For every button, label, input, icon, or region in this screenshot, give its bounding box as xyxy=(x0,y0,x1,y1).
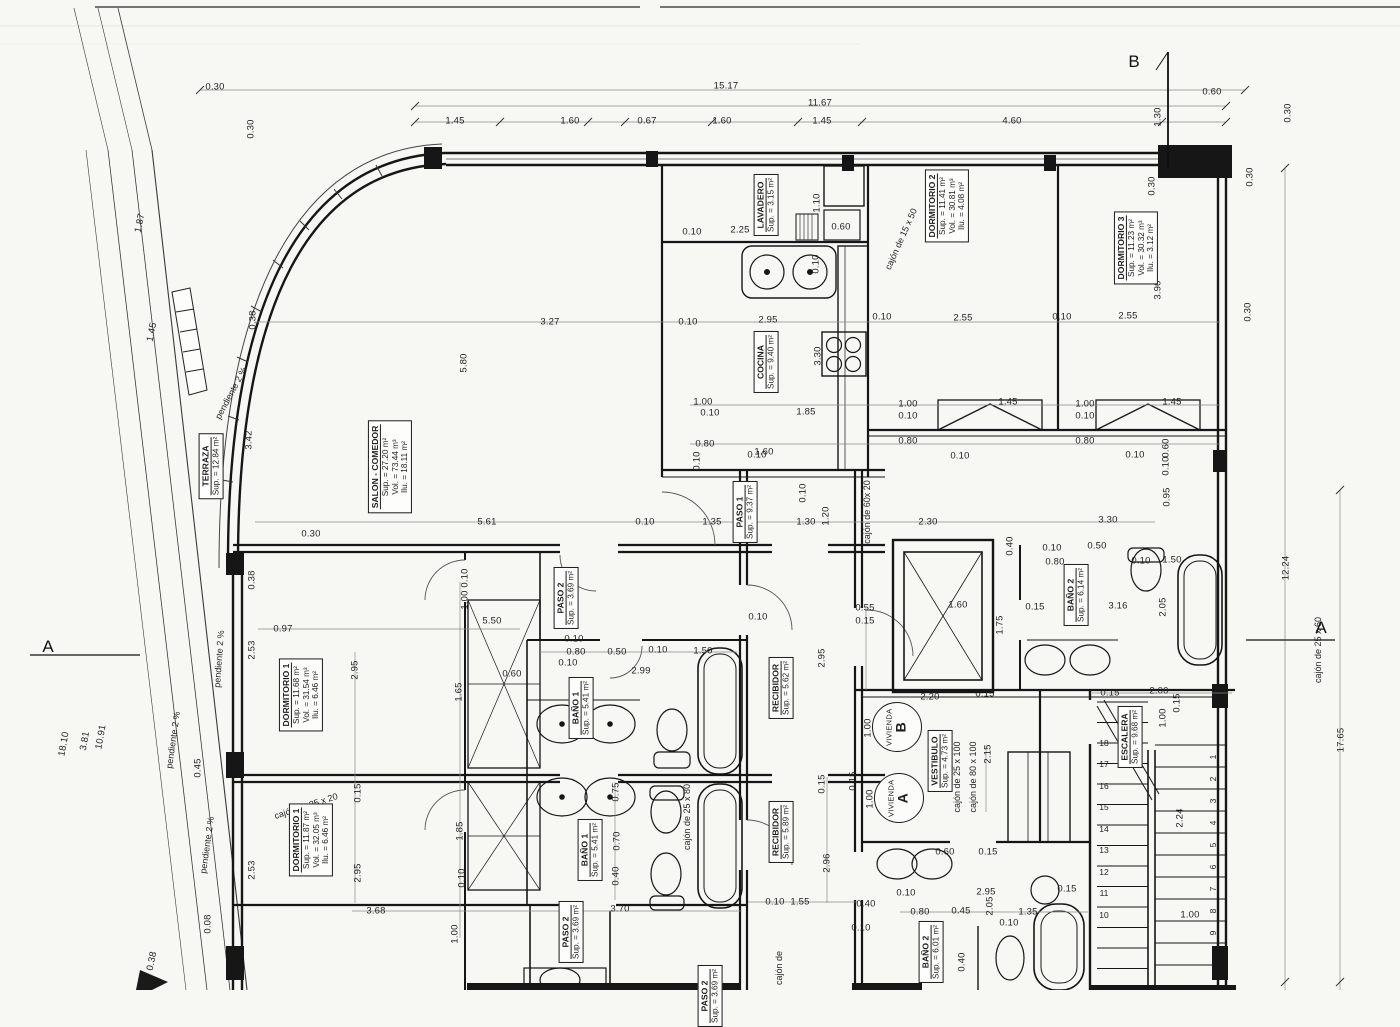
dimension-label: 2.95 xyxy=(350,660,361,679)
dimension-label: 0.40 xyxy=(611,866,622,885)
stair-number: 2 xyxy=(1208,777,1218,782)
dimension-label: 2.55 xyxy=(953,313,972,324)
dimension-label: 0.50 xyxy=(1087,541,1106,552)
room-metric: Vol. = 31.54 m³ xyxy=(302,663,312,728)
room-name: PASO 2 xyxy=(561,905,572,959)
dimension-label: 2.05 xyxy=(985,896,996,915)
room-metric: Vol. = 73.44 m³ xyxy=(391,425,401,510)
dimension-label: 2.96 xyxy=(822,853,833,872)
dimension-label: 2.24 xyxy=(1175,808,1186,827)
room-label-vestibulo: VESTIBULOSup. = 4.73 m² xyxy=(928,730,953,792)
slope-note: pendiente 2 % xyxy=(198,816,216,874)
dimension-label: 0.60 xyxy=(1202,87,1221,98)
dimension-label: 17.65 xyxy=(1336,728,1347,753)
room-label-paso-2-a: PASO 2Sup. = 3.69 m² xyxy=(559,901,584,963)
room-name: LAVADERO xyxy=(756,178,767,232)
dimension-label: 0.70 xyxy=(612,831,623,850)
section-letter: A xyxy=(1315,618,1326,638)
room-metric: Sup. = 3.15 m² xyxy=(767,178,777,232)
room-metric: Sup. = 9.40 m² xyxy=(767,335,777,389)
dimension-label: 18.10 xyxy=(56,731,71,757)
dimension-label: 0.15 xyxy=(1025,602,1044,613)
dimension-label: 2.30 xyxy=(918,517,937,528)
dimension-label: 0.15 xyxy=(353,783,364,802)
slope-note: pendiente 2 % xyxy=(164,711,182,769)
dimension-label: 0.15 xyxy=(1100,688,1119,699)
stair-number: 14 xyxy=(1099,824,1108,834)
section-letter: B xyxy=(1128,52,1139,72)
stair-number: 11 xyxy=(1100,888,1109,898)
room-name: RECIBIDOR xyxy=(771,661,782,715)
dimension-label: 5.50 xyxy=(482,616,501,627)
dimension-label: 0.60 xyxy=(502,669,521,680)
dimension-label: 0.10 xyxy=(692,451,703,470)
dimension-label: 1.50 xyxy=(1162,555,1181,566)
room-name: BAÑO 2 xyxy=(1066,568,1077,622)
room-metric: Sup. = 6.14 m² xyxy=(1077,568,1087,622)
dimension-label: 1.35 xyxy=(702,517,721,528)
room-label-recibidor-b: RECIBIDORSup. = 5.62 m² xyxy=(769,657,794,719)
dimension-label: 0.45 xyxy=(193,758,204,777)
dimension-label: 1.00 xyxy=(1180,910,1199,921)
dimension-label: 0.08 xyxy=(203,914,214,933)
dimension-label: 2.00 xyxy=(1149,686,1168,697)
dimension-label: 0.10 xyxy=(457,868,468,887)
dimension-label: 3.70 xyxy=(610,904,629,915)
dimension-label: 0.10 xyxy=(1131,556,1150,567)
dimension-label: 15.17 xyxy=(714,81,739,92)
dimension-label: 1.30 xyxy=(1153,107,1164,126)
dimension-label: 0.50 xyxy=(607,647,626,658)
room-metric: Sup. = 3.69 m² xyxy=(572,905,582,959)
dimension-label: 0.10 xyxy=(798,483,809,502)
dimension-label: 0.10 xyxy=(678,317,697,328)
room-metric: Sup. = 3.69 m² xyxy=(711,969,721,1023)
dimension-label: 0.10 xyxy=(1125,450,1144,461)
dimension-label: 1.60 xyxy=(948,600,967,611)
dimension-label: 0.67 xyxy=(637,116,656,127)
dimension-label: 0.30 xyxy=(1147,176,1158,195)
dimension-label: 0.10 xyxy=(765,897,784,908)
room-label-dormitorio-3: DORMITORIO 3Sup. = 11.23 m²Vol. = 30.32 … xyxy=(1114,212,1158,285)
dimension-label: 0.15 xyxy=(848,771,859,790)
room-name: BAÑO 2 xyxy=(921,925,932,979)
stair-number: 7 xyxy=(1208,887,1218,892)
dimension-label: 1.85 xyxy=(796,407,815,418)
dimension-label: 0.10 xyxy=(747,450,766,461)
room-metric: Sup. = 11.23 m² xyxy=(1127,216,1137,281)
dimension-label: 0.10 xyxy=(1075,411,1094,422)
stair-number: 13 xyxy=(1099,845,1108,855)
dimension-label: 0.40 xyxy=(1005,536,1016,555)
dimension-label: 11.67 xyxy=(808,98,832,109)
dimension-label: 1.45 xyxy=(1162,397,1181,408)
dimension-label: 0.38 xyxy=(248,310,259,329)
dimension-label: 1.00 xyxy=(1158,708,1169,727)
dimension-label: 0.10 xyxy=(748,612,767,623)
dimension-label: 1.30 xyxy=(796,517,815,528)
stair-number: 18 xyxy=(1099,738,1108,748)
dimension-label: 0.10 xyxy=(460,568,471,587)
room-metric: Sup. = 27.20 m² xyxy=(381,425,391,510)
room-metric: Sup. = 11.68 m² xyxy=(292,663,302,728)
room-name: BAÑO 1 xyxy=(580,823,591,877)
room-label-escalera: ESCALERASup. = 9.68 m² xyxy=(1118,706,1143,768)
dimension-label: 0.10 xyxy=(648,645,667,656)
room-metric: Sup. = 5.41 m² xyxy=(591,823,601,877)
room-label-bano-2-b: BAÑO 2Sup. = 6.14 m² xyxy=(1064,564,1089,626)
room-label-terraza: TERRAZASup. = 12.84 m² xyxy=(199,433,224,499)
dimension-label: 0.95 xyxy=(1162,487,1173,506)
dimension-label: 0.38 xyxy=(145,950,160,971)
dimension-label: 1.60 xyxy=(712,116,731,127)
annotation-layer: 0.3015.170.6011.671.451.600.671.601.454.… xyxy=(0,0,1400,990)
dimension-label: 0.10 xyxy=(898,411,917,422)
dimension-label: 0.60 xyxy=(831,222,850,233)
room-metric: Ilu. = 6.46 m² xyxy=(311,663,321,728)
dimension-label: 0.10 xyxy=(999,918,1018,929)
stair-number: 3 xyxy=(1208,799,1218,804)
dimension-label: 0.60 xyxy=(1161,438,1172,457)
dimension-label: 0.30 xyxy=(1245,167,1256,186)
dimension-label: 0.80 xyxy=(910,907,929,918)
dimension-label: 3.27 xyxy=(540,317,559,328)
dimension-label: 0.15 xyxy=(978,847,997,858)
dimension-label: 0.40 xyxy=(957,952,968,971)
dimension-label: 0.30 xyxy=(246,119,257,138)
dimension-label: 0.10 xyxy=(872,312,891,323)
room-name: PASO 2 xyxy=(556,571,567,625)
dimension-label: 2.53 xyxy=(247,860,258,879)
dimension-label: 2.95 xyxy=(353,863,364,882)
stair-number: 15 xyxy=(1099,802,1108,812)
stair-number: 6 xyxy=(1208,865,1218,870)
dimension-label: 0.15 xyxy=(975,689,994,700)
dimension-label: 0.60 xyxy=(935,847,954,858)
dimension-label: 1.65 xyxy=(454,682,465,701)
dimension-label: 1.75 xyxy=(995,615,1006,634)
dimension-label: 0.38 xyxy=(247,570,258,589)
cajon-note: cajón de 25 x 100 xyxy=(952,741,962,812)
dimension-label: 1.10 xyxy=(812,193,823,212)
dimension-label: 5.80 xyxy=(459,353,470,372)
unit-badge-a: VIVIENDAA xyxy=(874,773,924,823)
dimension-label: 0.80 xyxy=(566,647,585,658)
dimension-label: 2.15 xyxy=(983,744,994,763)
room-label-lavadero: LAVADEROSup. = 3.15 m² xyxy=(754,174,779,236)
stair-number: 9 xyxy=(1208,931,1218,936)
dimension-label: 1.00 xyxy=(898,399,917,410)
cajon-note: cajón de 25 x 80 xyxy=(682,784,692,850)
dimension-label: 1.00 xyxy=(1075,399,1094,410)
floorplan-sheet: 0.3015.170.6011.671.451.600.671.601.454.… xyxy=(0,0,1400,990)
dimension-label: 0.40 xyxy=(856,899,875,910)
room-metric: Sup. = 9.37 m² xyxy=(746,485,756,539)
room-name: VESTIBULO xyxy=(930,734,941,788)
room-label-paso-2-b: PASO 2Sup. = 3.69 m² xyxy=(554,567,579,629)
slope-note: pendiente 2 % xyxy=(213,365,249,421)
room-label-bano-2-a: BAÑO 2Sup. = 6.01 m² xyxy=(919,921,944,983)
dimension-label: 0.10 xyxy=(1161,456,1172,475)
dimension-label: 0.30 xyxy=(301,529,320,540)
dimension-label: 0.10 xyxy=(851,923,870,934)
room-metric: Sup. = 5.41 m² xyxy=(582,681,592,735)
room-label-recibidor-a: RECIBIDORSup. = 5.89 m² xyxy=(769,801,794,863)
dimension-label: 0.10 xyxy=(896,888,915,899)
dimension-label: 2.55 xyxy=(1118,311,1137,322)
dimension-label: 3.81 xyxy=(78,731,92,752)
room-metric: Ilu. = 4.08 m² xyxy=(957,174,967,239)
dimension-label: 2.95 xyxy=(817,648,828,667)
room-label-dormitorio-1-a: DORMITORIO 1Sup. = 11.87 m²Vol. = 32.05 … xyxy=(289,804,333,877)
room-label-salon-comedor: SALON - COMEDORSup. = 27.20 m²Vol. = 73.… xyxy=(368,421,412,514)
cajon-note: cajón de xyxy=(774,951,784,985)
room-metric: Sup. = 6.01 m² xyxy=(932,925,942,979)
room-name: DORMITORIO 2 xyxy=(927,174,938,239)
dimension-label: 0.30 xyxy=(1243,302,1254,321)
dimension-label: 0.45 xyxy=(951,906,970,917)
unit-badge-letter: B xyxy=(894,708,909,745)
dimension-label: 1.85 xyxy=(455,821,466,840)
stair-number: 10 xyxy=(1099,910,1108,920)
cajon-note: cajón de 80 x 100 xyxy=(968,741,978,812)
dimension-label: 12.24 xyxy=(1281,556,1292,581)
dimension-label: 0.15 xyxy=(1057,884,1076,895)
room-name: DORMITORIO 3 xyxy=(1116,216,1127,281)
stair-number: 1 xyxy=(1208,755,1218,760)
cajon-note: cajón de 15 x 50 xyxy=(883,207,919,271)
room-name: PASO 2 xyxy=(700,969,711,1023)
room-name: DORMITORIO 1 xyxy=(291,808,302,873)
room-metric: Vol. = 32.05 m³ xyxy=(312,808,322,873)
dimension-label: 0.10 xyxy=(635,517,654,528)
dimension-label: 0.15 xyxy=(817,774,828,793)
dimension-label: 10.91 xyxy=(93,724,108,750)
dimension-label: 0.10 xyxy=(700,408,719,419)
dimension-label: 2.20 xyxy=(920,692,939,703)
room-metric: Sup. = 5.89 m² xyxy=(782,805,792,859)
dimension-label: 1.00 xyxy=(693,397,712,408)
room-label-paso-1: PASO 1Sup. = 9.37 m² xyxy=(733,481,758,543)
dimension-label: 3.68 xyxy=(366,906,385,917)
dimension-label: 0.55 xyxy=(855,603,874,614)
dimension-label: 0.75 xyxy=(611,782,622,801)
dimension-label: 0.30 xyxy=(205,82,224,93)
dimension-label: 0.80 xyxy=(1075,436,1094,447)
room-metric: Sup. = 5.62 m² xyxy=(782,661,792,715)
room-metric: Ilu. = 18.11 m² xyxy=(400,425,410,510)
dimension-label: 1.00 xyxy=(450,924,461,943)
dimension-label: 0.10 xyxy=(682,227,701,238)
room-name: SALON - COMEDOR xyxy=(370,425,381,510)
room-label-dormitorio-2: DORMITORIO 2Sup. = 11.41 m²Vol. = 30.81 … xyxy=(925,170,969,243)
dimension-label: 2.99 xyxy=(631,666,650,677)
dimension-label: 2.25 xyxy=(730,225,749,236)
room-name: BAÑO 1 xyxy=(571,681,582,735)
dimension-label: 1.50 xyxy=(693,646,712,657)
stair-number: 12 xyxy=(1099,867,1108,877)
room-label-bano-1-a: BAÑO 1Sup. = 5.41 m² xyxy=(578,819,603,881)
room-metric: Sup. = 11.41 m² xyxy=(938,174,948,239)
room-label-bano-1-b: BAÑO 1Sup. = 5.41 m² xyxy=(569,677,594,739)
dimension-label: 5.61 xyxy=(477,517,496,528)
room-metric: Sup. = 4.73 m² xyxy=(941,734,951,788)
slope-note: pendiente 2 % xyxy=(212,630,226,688)
dimension-label: 0.97 xyxy=(273,624,292,635)
room-metric: Sup. = 11.87 m² xyxy=(302,808,312,873)
stair-number: 17 xyxy=(1099,759,1108,769)
dimension-label: 0.80 xyxy=(898,436,917,447)
dimension-label: 0.15 xyxy=(1172,693,1183,712)
dimension-label: 0.10 xyxy=(1042,543,1061,554)
room-label-cocina: COCINASup. = 9.40 m² xyxy=(754,331,779,393)
stair-number: 16 xyxy=(1099,781,1108,791)
room-label-dormitorio-1-b: DORMITORIO 1Sup. = 11.68 m²Vol. = 31.54 … xyxy=(279,659,323,732)
room-name: COCINA xyxy=(756,335,767,389)
room-name: PASO 1 xyxy=(735,485,746,539)
dimension-label: 1.00 xyxy=(460,590,471,609)
room-metric: Sup. = 3.69 m² xyxy=(567,571,577,625)
dimension-label: 1.35 xyxy=(1018,907,1037,918)
dimension-label: 3.16 xyxy=(1108,601,1127,612)
dimension-label: 0.10 xyxy=(1052,312,1071,323)
dimension-label: 3.42 xyxy=(244,430,255,449)
stair-number: 4 xyxy=(1208,821,1218,826)
room-metric: Ilu. = 6.46 m² xyxy=(321,808,331,873)
room-label-paso-cut: PASO 2Sup. = 3.69 m² xyxy=(698,965,723,1027)
dimension-label: 0.30 xyxy=(1283,103,1294,122)
room-metric: Ilu. = 3.12 m² xyxy=(1146,216,1156,281)
dimension-label: 0.80 xyxy=(1045,557,1064,568)
dimension-label: 0.80 xyxy=(695,439,714,450)
dimension-label: 1.45 xyxy=(445,116,464,127)
dimension-label: 0.10 xyxy=(558,658,577,669)
stair-number: 5 xyxy=(1208,843,1218,848)
room-name: RECIBIDOR xyxy=(771,805,782,859)
dimension-label: 1.45 xyxy=(812,116,831,127)
dimension-label: 0.10 xyxy=(950,451,969,462)
dimension-label: 1.45 xyxy=(998,397,1017,408)
dimension-label: 1.45 xyxy=(145,321,160,342)
room-metric: Vol. = 30.81 m³ xyxy=(948,174,958,239)
dimension-label: 0.10 xyxy=(811,254,822,273)
room-name: DORMITORIO 1 xyxy=(281,663,292,728)
stair-number: 8 xyxy=(1208,909,1218,914)
room-metric: Vol. = 30.32 m³ xyxy=(1137,216,1147,281)
dimension-label: 4.60 xyxy=(1002,116,1021,127)
unit-badge-b: VIVIENDAB xyxy=(872,702,922,752)
dimension-label: 2.95 xyxy=(758,315,777,326)
dimension-label: 1.87 xyxy=(133,212,148,233)
section-letter: A xyxy=(42,637,53,657)
unit-badge-letter: A xyxy=(896,779,911,816)
room-name: TERRAZA xyxy=(201,437,212,495)
cajon-note: cajón de 60x 20 xyxy=(862,480,872,544)
room-name: ESCALERA xyxy=(1120,710,1131,764)
dimension-label: 2.53 xyxy=(247,640,258,659)
dimension-label: 0.10 xyxy=(564,634,583,645)
dimension-label: 0.15 xyxy=(855,616,874,627)
room-metric: Sup. = 12.84 m² xyxy=(212,437,222,495)
room-metric: Sup. = 9.68 m² xyxy=(1131,710,1141,764)
dimension-label: 1.20 xyxy=(821,506,832,525)
dimension-label: 1.55 xyxy=(790,897,809,908)
dimension-label: 3.30 xyxy=(1098,515,1117,526)
dimension-label: 2.05 xyxy=(1158,597,1169,616)
dimension-label: 3.30 xyxy=(813,346,824,365)
dimension-label: 1.60 xyxy=(560,116,579,127)
